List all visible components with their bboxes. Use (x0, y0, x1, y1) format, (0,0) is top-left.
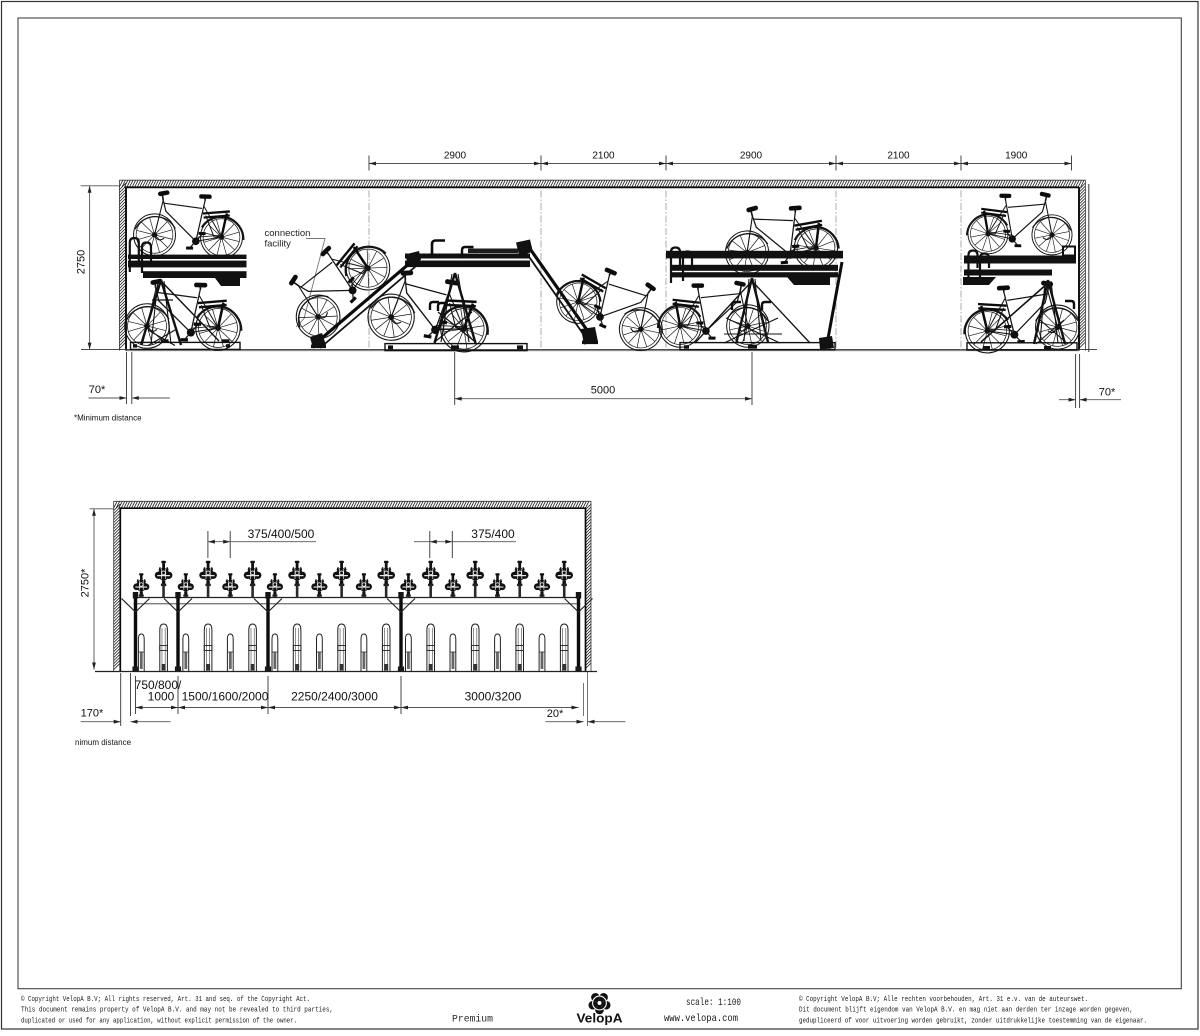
svg-text:2100: 2100 (592, 151, 615, 162)
svg-text:5000: 5000 (591, 385, 615, 397)
svg-text:3000/3200: 3000/3200 (465, 690, 522, 704)
svg-text:375/400/500: 375/400/500 (248, 527, 315, 541)
svg-text:connection: connection (265, 228, 311, 239)
svg-text:2250/2400/3000: 2250/2400/3000 (291, 690, 378, 704)
svg-text:2900: 2900 (740, 151, 763, 162)
svg-text:170*: 170* (81, 708, 104, 720)
svg-text:1900: 1900 (1005, 151, 1028, 162)
svg-text:375/400: 375/400 (471, 527, 515, 541)
svg-text:scale: 1:100: scale: 1:100 (686, 997, 741, 1009)
svg-text:© Copyright VelopA B.V; All ri: © Copyright VelopA B.V; All rights reser… (21, 995, 310, 1004)
svg-text:1500/1600/2000: 1500/1600/2000 (182, 690, 269, 704)
svg-text:2900: 2900 (444, 151, 467, 162)
svg-text:70*: 70* (1099, 387, 1116, 399)
svg-text:1000: 1000 (148, 690, 175, 704)
svg-text:gedupliceerd of voor uitvoerin: gedupliceerd of voor uitvoering worden g… (799, 1017, 1147, 1025)
svg-text:2100: 2100 (887, 151, 910, 162)
svg-text:duplicated or used for any app: duplicated or used for any application, … (21, 1017, 297, 1025)
svg-text:20*: 20* (547, 708, 564, 720)
svg-text:Dit document blijft eigendom v: Dit document blijft eigendom van VelopA … (799, 1007, 1133, 1015)
svg-text:This document remains property: This document remains property of VelopA… (21, 1007, 333, 1015)
svg-text:Premium: Premium (452, 1014, 493, 1026)
svg-text:70*: 70* (89, 384, 106, 396)
svg-text:2750: 2750 (76, 250, 88, 274)
svg-text:facility: facility (265, 239, 292, 250)
svg-text:VelopA: VelopA (577, 1012, 623, 1026)
svg-text:nimum distance: nimum distance (75, 738, 132, 747)
svg-text:© Copyright VelopA B.V; Alle r: © Copyright VelopA B.V; Alle rechten voo… (799, 995, 1088, 1004)
svg-text:2750*: 2750* (80, 568, 92, 597)
svg-text:www.velopa.com: www.velopa.com (664, 1013, 738, 1025)
svg-text:*Minimum distance: *Minimum distance (74, 414, 142, 423)
